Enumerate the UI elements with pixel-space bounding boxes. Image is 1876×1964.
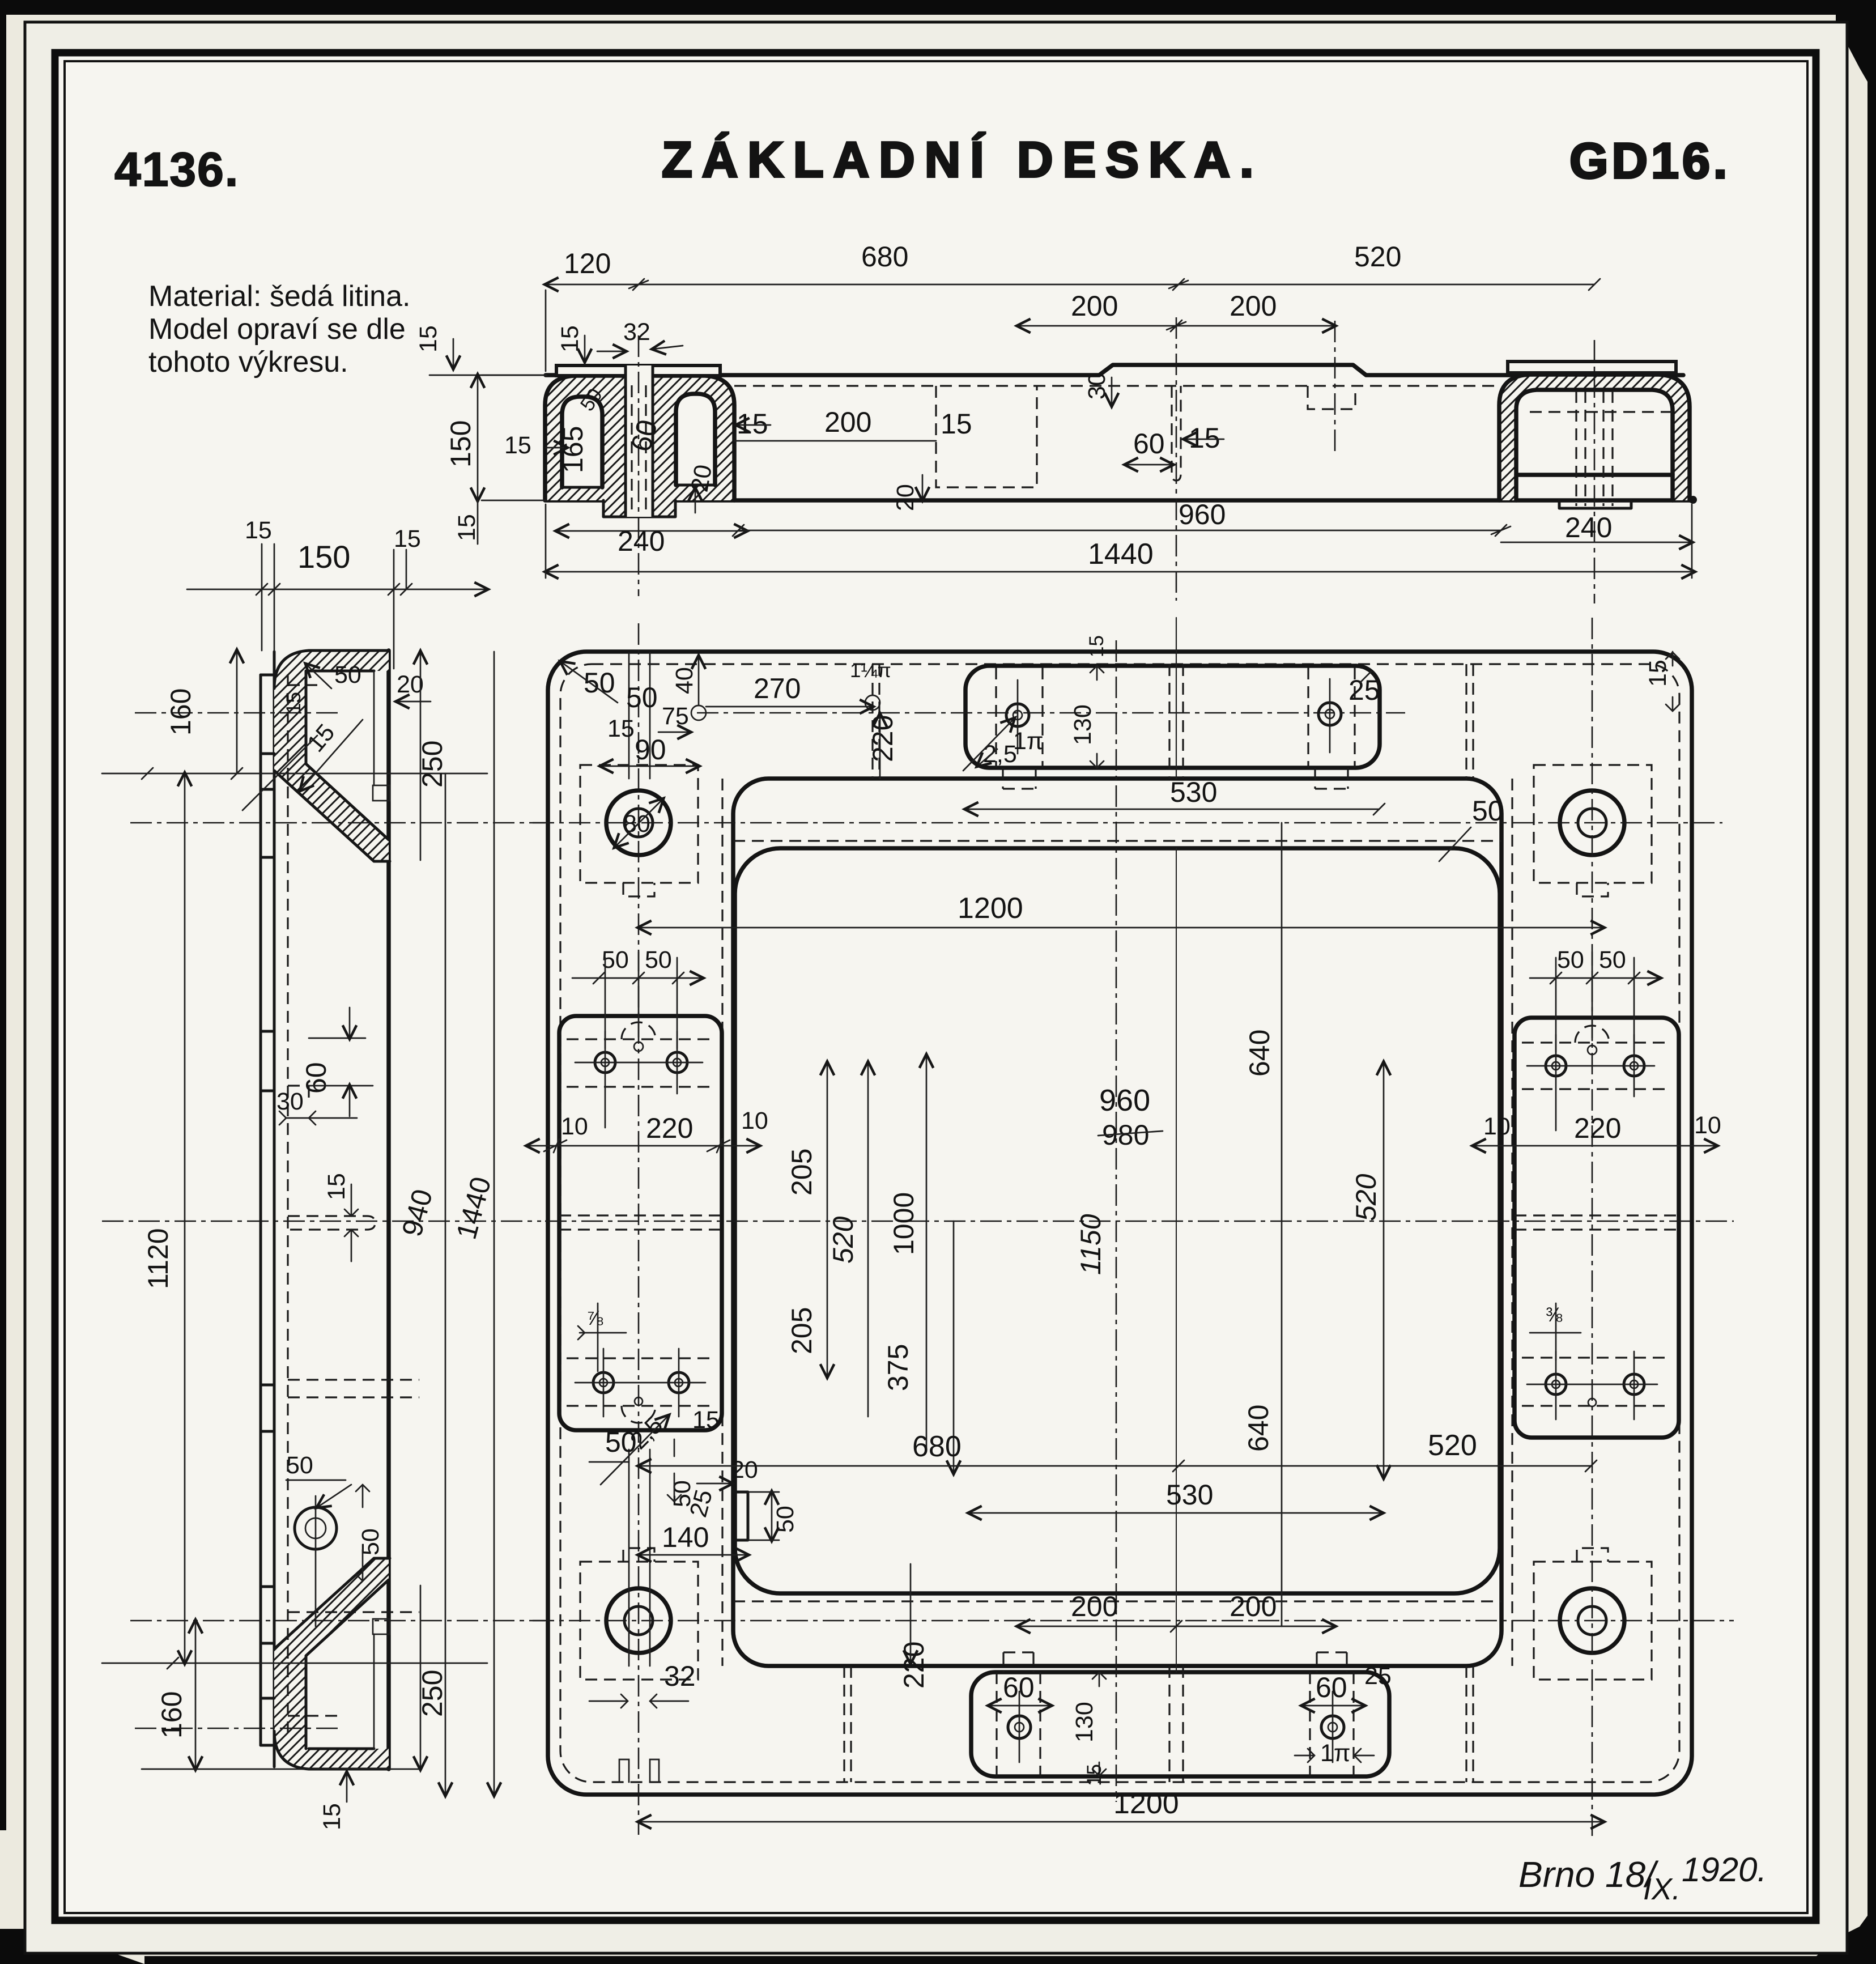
svg-text:50: 50 bbox=[357, 1528, 384, 1555]
svg-text:50: 50 bbox=[584, 667, 615, 699]
svg-text:⅜: ⅜ bbox=[1546, 1304, 1563, 1326]
svg-text:1000: 1000 bbox=[888, 1192, 920, 1255]
svg-text:50: 50 bbox=[669, 1480, 696, 1507]
svg-text:60: 60 bbox=[1003, 1672, 1035, 1703]
svg-text:530: 530 bbox=[1166, 1479, 1213, 1511]
svg-text:tohoto výkresu.: tohoto výkresu. bbox=[148, 346, 348, 379]
svg-text:Model opraví se dle: Model opraví se dle bbox=[148, 313, 406, 346]
svg-text:130: 130 bbox=[1071, 1702, 1098, 1742]
svg-text:15: 15 bbox=[318, 1803, 346, 1830]
svg-text:205: 205 bbox=[786, 1307, 818, 1354]
svg-text:520: 520 bbox=[1354, 241, 1401, 273]
svg-text:32: 32 bbox=[623, 318, 650, 346]
svg-text:50: 50 bbox=[1599, 946, 1626, 974]
svg-text:250: 250 bbox=[416, 741, 448, 788]
svg-text:50: 50 bbox=[1472, 795, 1504, 827]
svg-text:150: 150 bbox=[297, 539, 350, 575]
svg-text:15: 15 bbox=[245, 517, 272, 544]
svg-text:120: 120 bbox=[564, 248, 611, 279]
svg-text:680: 680 bbox=[912, 1430, 962, 1463]
svg-text:160: 160 bbox=[156, 1691, 188, 1738]
svg-text:40: 40 bbox=[671, 667, 698, 694]
svg-text:20: 20 bbox=[731, 1456, 758, 1483]
svg-text:25: 25 bbox=[1364, 1663, 1392, 1690]
svg-text:15: 15 bbox=[941, 408, 972, 440]
svg-text:140: 140 bbox=[662, 1521, 709, 1553]
svg-text:Material: šedá litina.: Material: šedá litina. bbox=[148, 280, 410, 313]
svg-text:270: 270 bbox=[754, 673, 801, 704]
svg-text:15: 15 bbox=[453, 514, 480, 541]
svg-text:680: 680 bbox=[861, 241, 908, 273]
svg-text:GD16.: GD16. bbox=[1569, 133, 1730, 189]
svg-text:200: 200 bbox=[824, 406, 871, 438]
svg-text:1440: 1440 bbox=[1088, 538, 1154, 571]
svg-text:50: 50 bbox=[286, 1452, 313, 1479]
svg-text:200: 200 bbox=[1071, 290, 1118, 322]
svg-text:15: 15 bbox=[415, 325, 442, 352]
svg-text:520: 520 bbox=[1428, 1429, 1477, 1462]
svg-text:50: 50 bbox=[645, 946, 672, 974]
svg-text:DESKA.: DESKA. bbox=[1017, 131, 1264, 188]
svg-text:90: 90 bbox=[635, 734, 666, 766]
svg-text:220: 220 bbox=[867, 715, 899, 762]
svg-text:150: 150 bbox=[445, 420, 477, 467]
svg-text:10: 10 bbox=[1694, 1112, 1721, 1139]
svg-text:ZÁKLADNÍ: ZÁKLADNÍ bbox=[662, 131, 994, 188]
svg-text:1π: 1π bbox=[1013, 728, 1044, 755]
svg-text:15: 15 bbox=[1086, 635, 1108, 657]
svg-text:15: 15 bbox=[1083, 1764, 1105, 1786]
svg-text:240: 240 bbox=[618, 525, 665, 557]
svg-text:200: 200 bbox=[1071, 1591, 1118, 1622]
svg-text:640: 640 bbox=[1244, 1030, 1275, 1077]
svg-text:15: 15 bbox=[504, 432, 531, 459]
svg-text:30: 30 bbox=[276, 1088, 304, 1115]
svg-text:20: 20 bbox=[686, 462, 718, 494]
svg-text:50: 50 bbox=[772, 1506, 799, 1533]
svg-text:375: 375 bbox=[882, 1344, 914, 1391]
svg-text:520: 520 bbox=[1350, 1174, 1382, 1221]
svg-text:1920.: 1920. bbox=[1682, 1851, 1767, 1889]
svg-text:50: 50 bbox=[605, 1426, 637, 1458]
svg-text:60: 60 bbox=[1133, 428, 1165, 460]
svg-text:165: 165 bbox=[557, 426, 589, 473]
svg-text:960: 960 bbox=[1179, 499, 1226, 530]
svg-text:15: 15 bbox=[394, 525, 421, 552]
svg-text:15: 15 bbox=[556, 325, 584, 352]
svg-text:640: 640 bbox=[1243, 1405, 1274, 1452]
svg-text:1150: 1150 bbox=[1075, 1214, 1107, 1275]
svg-text:32: 32 bbox=[664, 1660, 696, 1692]
svg-text:520: 520 bbox=[827, 1216, 859, 1264]
svg-text:960: 960 bbox=[1099, 1083, 1150, 1117]
svg-text:60: 60 bbox=[1316, 1672, 1347, 1703]
svg-text:80: 80 bbox=[623, 810, 650, 838]
svg-text:1200: 1200 bbox=[1113, 1787, 1179, 1820]
svg-text:⅞: ⅞ bbox=[586, 1307, 603, 1329]
svg-text:220: 220 bbox=[898, 1642, 930, 1689]
svg-text:1π: 1π bbox=[1320, 1740, 1351, 1767]
svg-text:15: 15 bbox=[607, 715, 635, 742]
svg-text:160: 160 bbox=[165, 688, 197, 736]
svg-text:10: 10 bbox=[561, 1113, 588, 1140]
svg-text:50: 50 bbox=[334, 661, 361, 688]
svg-text:75: 75 bbox=[662, 703, 689, 730]
svg-text:250: 250 bbox=[416, 1670, 448, 1717]
svg-text:1200: 1200 bbox=[958, 892, 1023, 925]
svg-text:220: 220 bbox=[646, 1112, 693, 1144]
svg-text:200: 200 bbox=[1230, 290, 1277, 322]
svg-text:15: 15 bbox=[1644, 660, 1671, 687]
svg-text:15: 15 bbox=[283, 692, 305, 714]
svg-text:50: 50 bbox=[626, 682, 658, 713]
svg-text:60: 60 bbox=[300, 1062, 332, 1094]
svg-text:Brno 18/: Brno 18/ bbox=[1518, 1854, 1659, 1895]
svg-text:200: 200 bbox=[1230, 1591, 1277, 1622]
svg-text:50: 50 bbox=[1557, 946, 1584, 974]
svg-text:240: 240 bbox=[1565, 512, 1612, 543]
svg-text:10: 10 bbox=[1483, 1113, 1511, 1140]
svg-text:220: 220 bbox=[1574, 1112, 1621, 1144]
svg-text:20: 20 bbox=[892, 484, 919, 511]
svg-text:15: 15 bbox=[692, 1406, 720, 1434]
svg-text:15: 15 bbox=[323, 1173, 350, 1200]
svg-text:15: 15 bbox=[1189, 422, 1220, 454]
svg-text:30: 30 bbox=[1083, 372, 1111, 399]
svg-text:1120: 1120 bbox=[142, 1228, 174, 1289]
svg-text:530: 530 bbox=[1170, 776, 1217, 808]
svg-text:205: 205 bbox=[786, 1149, 818, 1196]
svg-text:130: 130 bbox=[1069, 704, 1096, 745]
svg-text:10: 10 bbox=[741, 1107, 768, 1134]
svg-text:15: 15 bbox=[737, 408, 768, 440]
svg-text:1¼π: 1¼π bbox=[850, 660, 891, 682]
svg-text:4136.: 4136. bbox=[114, 143, 239, 196]
svg-text:IX.: IX. bbox=[1643, 1872, 1681, 1906]
